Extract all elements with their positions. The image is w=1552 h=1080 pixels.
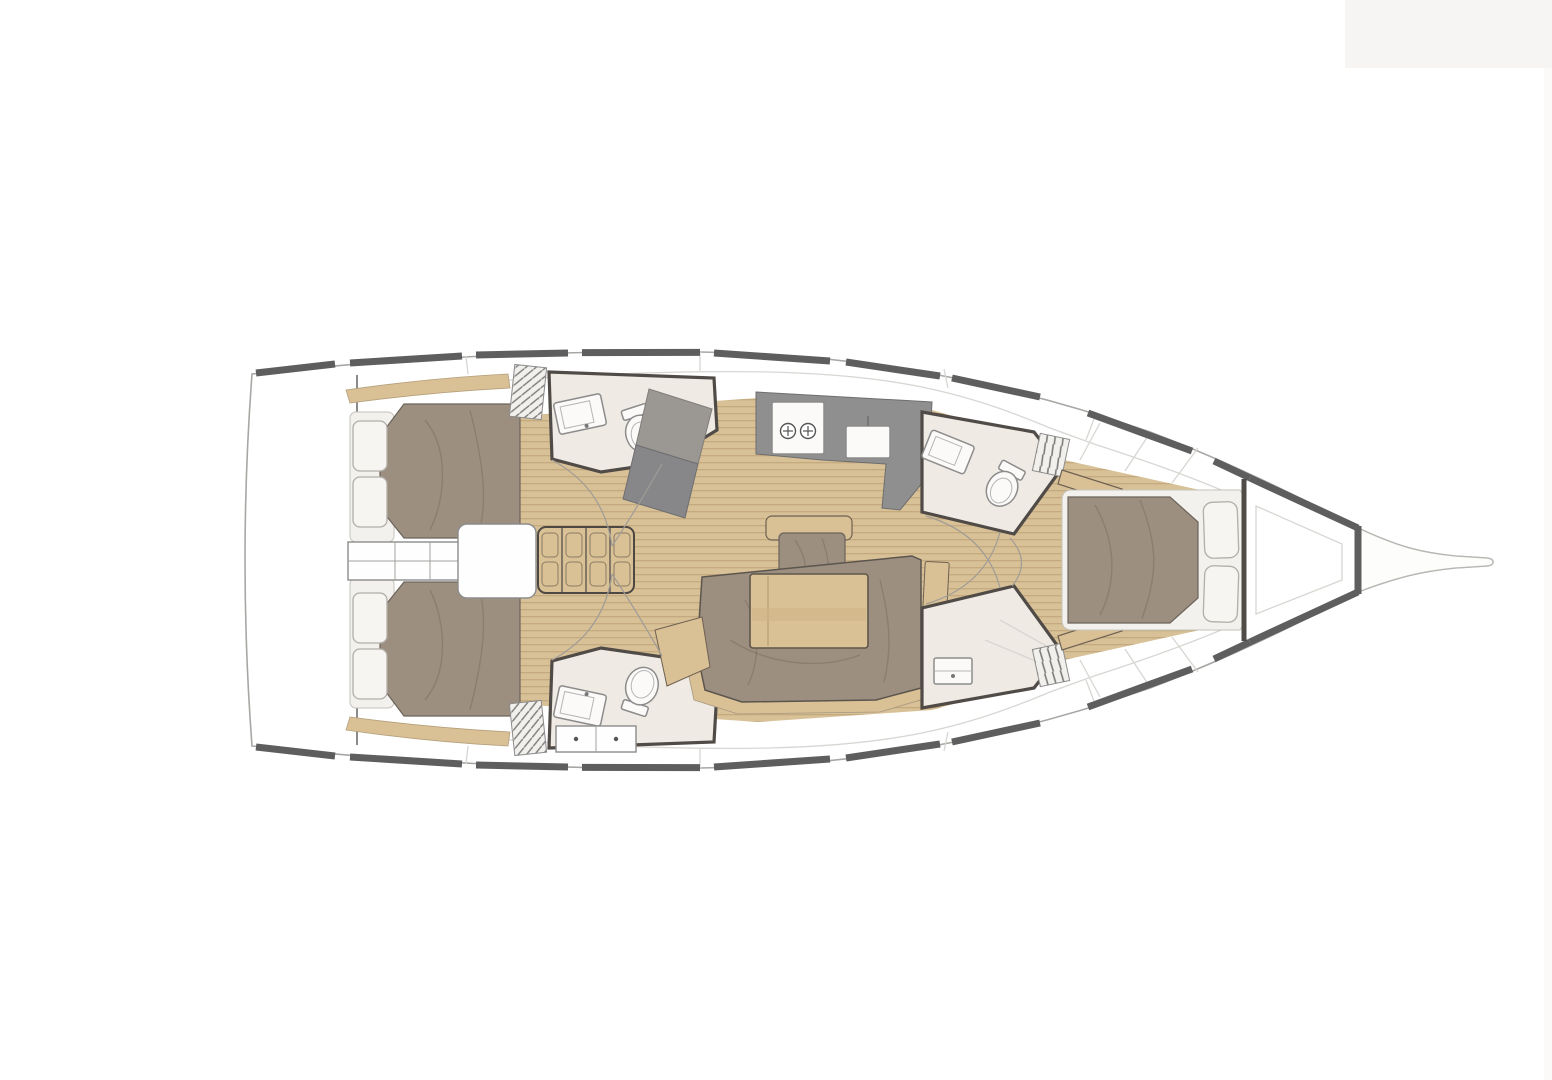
engine-compartment <box>458 524 536 598</box>
island-berth-duvet <box>1068 497 1198 623</box>
pillow <box>1203 501 1239 558</box>
double-berth <box>380 582 520 716</box>
aft-cabin-port <box>350 404 520 542</box>
double-berth <box>380 404 520 538</box>
pillow <box>353 421 387 471</box>
forward-cabin <box>1058 470 1244 650</box>
pillow <box>1203 565 1239 622</box>
pillow <box>353 477 387 527</box>
companionway-hatch-port <box>509 364 546 419</box>
stove <box>772 402 824 454</box>
drawer-unit <box>556 726 636 752</box>
bowsprit-platform <box>1358 528 1493 592</box>
pillow <box>353 593 387 643</box>
companionway-hatch-starboard <box>509 700 546 755</box>
dining-table <box>750 574 868 648</box>
yacht-floorplan <box>0 0 1552 1080</box>
topright-panel <box>1345 0 1552 68</box>
screenshot-canvas <box>0 0 1552 1080</box>
companionway-steps <box>538 527 634 593</box>
pillow <box>353 649 387 699</box>
right-edge-band <box>1544 68 1552 1080</box>
sink <box>934 658 972 684</box>
